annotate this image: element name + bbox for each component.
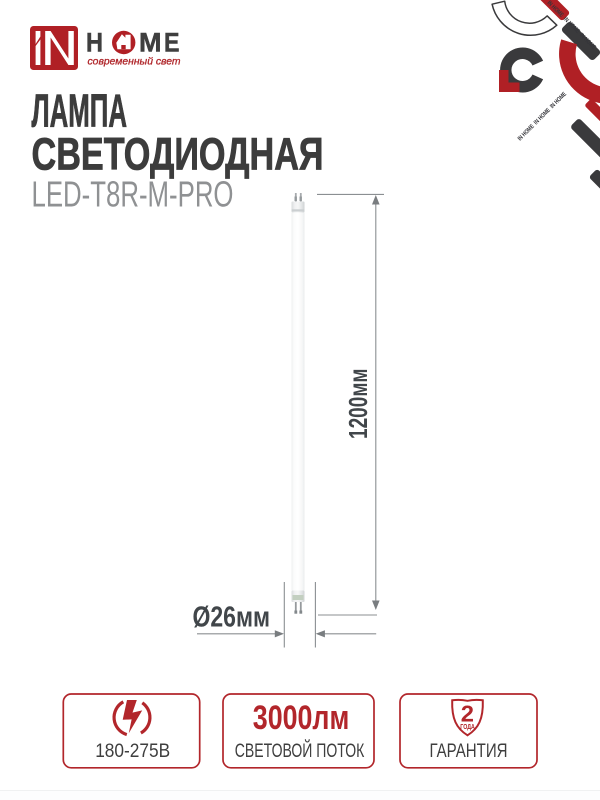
svg-text:3000лм: 3000лм — [253, 699, 349, 737]
svg-text:1200мм: 1200мм — [343, 369, 373, 440]
svg-text:современный свет: современный свет — [88, 56, 181, 68]
svg-text:ГОДА: ГОДА — [460, 722, 475, 731]
svg-text:180-275В: 180-275В — [95, 740, 170, 762]
svg-text:M: M — [139, 27, 162, 57]
svg-text:IN HOME IN HOME IN HOME: IN HOME IN HOME IN HOME — [516, 91, 568, 143]
svg-text:ГАРАНТИЯ: ГАРАНТИЯ — [430, 740, 508, 762]
svg-text:H: H — [86, 27, 103, 57]
svg-text:LED-T8R-M-PRO: LED-T8R-M-PRO — [32, 174, 234, 215]
svg-text:СВЕТОДИОДНАЯ: СВЕТОДИОДНАЯ — [32, 129, 324, 180]
svg-text:E: E — [164, 27, 180, 57]
svg-text:Ø26мм: Ø26мм — [193, 602, 271, 634]
svg-text:СВЕТОВОЙ ПОТОК: СВЕТОВОЙ ПОТОК — [235, 740, 364, 762]
